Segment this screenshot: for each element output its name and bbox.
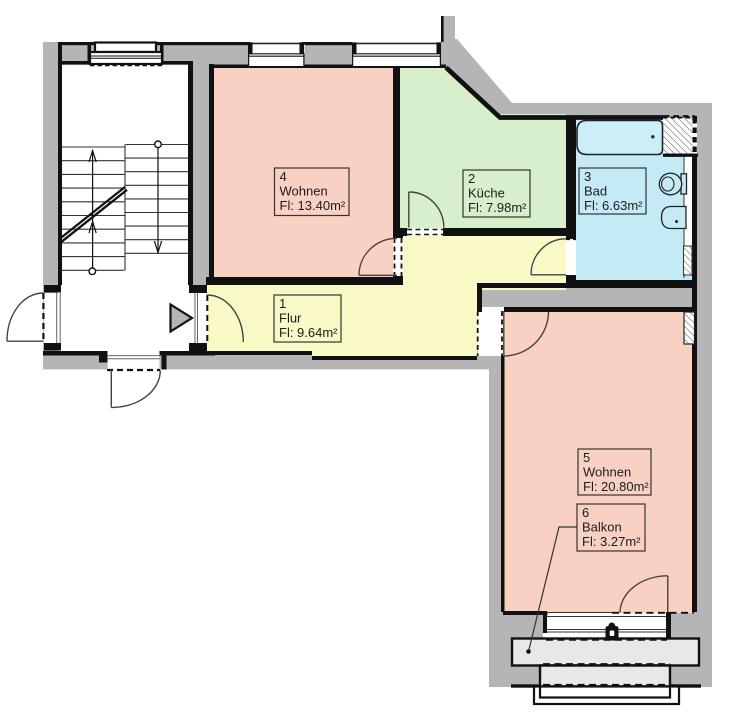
svg-text:Küche: Küche xyxy=(468,186,505,201)
svg-text:Wohnen: Wohnen xyxy=(583,465,631,480)
svg-text:3: 3 xyxy=(584,169,591,184)
svg-text:Balkon: Balkon xyxy=(582,520,622,535)
svg-text:2: 2 xyxy=(468,171,475,186)
svg-text:Fl: 13.40m²: Fl: 13.40m² xyxy=(280,198,346,213)
svg-text:5: 5 xyxy=(583,450,590,465)
svg-text:Flur: Flur xyxy=(279,311,302,326)
svg-text:Wohnen: Wohnen xyxy=(280,184,328,199)
svg-text:6: 6 xyxy=(582,505,589,520)
svg-text:1: 1 xyxy=(279,296,286,311)
svg-text:Fl: 3.27m²: Fl: 3.27m² xyxy=(582,534,641,549)
svg-text:Fl: 20.80m²: Fl: 20.80m² xyxy=(583,479,649,494)
svg-text:Bad: Bad xyxy=(584,184,607,199)
svg-text:Fl: 7.98m²: Fl: 7.98m² xyxy=(468,200,527,215)
svg-text:Fl: 9.64m²: Fl: 9.64m² xyxy=(279,325,338,340)
svg-text:4: 4 xyxy=(280,169,287,184)
svg-text:Fl: 6.63m²: Fl: 6.63m² xyxy=(584,198,643,213)
